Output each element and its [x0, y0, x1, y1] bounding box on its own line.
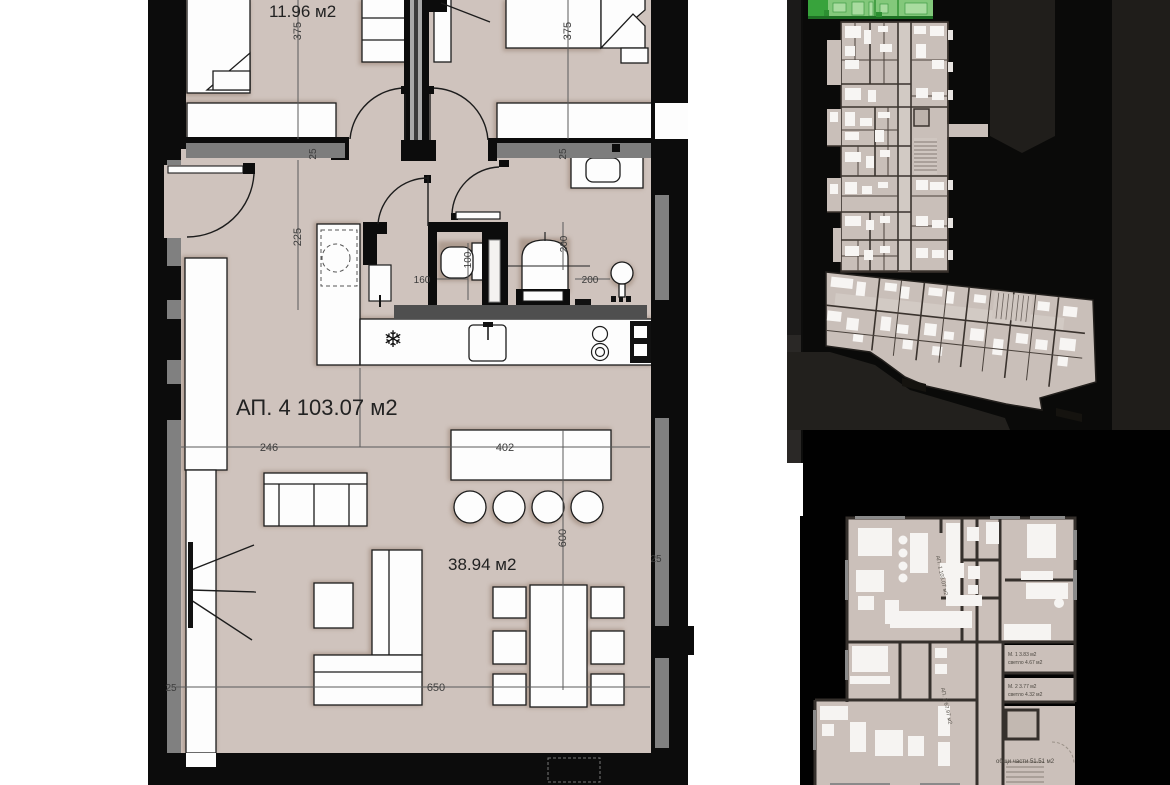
svg-text:38.94 м2: 38.94 м2	[448, 555, 516, 574]
svg-text:11.96 м2: 11.96 м2	[269, 2, 336, 21]
svg-text:общи части 51.51 м2: общи части 51.51 м2	[996, 759, 1055, 765]
svg-text:АП. 4 103.07 м2: АП. 4 103.07 м2	[236, 395, 398, 420]
svg-text:375: 375	[562, 22, 574, 40]
svg-text:200: 200	[582, 275, 599, 286]
svg-text:25: 25	[165, 683, 177, 694]
svg-text:246: 246	[260, 442, 278, 454]
svg-text:25: 25	[558, 148, 569, 160]
svg-text:200: 200	[559, 235, 570, 252]
svg-text:светло 4.32 м2: светло 4.32 м2	[1008, 692, 1043, 698]
svg-text:25: 25	[308, 148, 319, 160]
svg-text:100: 100	[463, 251, 474, 268]
svg-text:375: 375	[292, 22, 304, 40]
svg-text:25: 25	[650, 554, 662, 565]
svg-text:М. 2 3.77 м2: М. 2 3.77 м2	[1008, 684, 1037, 690]
svg-text:402: 402	[496, 442, 514, 454]
svg-text:160: 160	[414, 275, 431, 286]
svg-text:светло 4.67 м2: светло 4.67 м2	[1008, 660, 1043, 666]
svg-text:М. 1 3.83 м2: М. 1 3.83 м2	[1008, 652, 1037, 658]
svg-text:650: 650	[427, 682, 445, 694]
svg-text:❄: ❄	[383, 326, 402, 352]
svg-text:600: 600	[557, 529, 569, 547]
svg-text:225: 225	[292, 228, 304, 246]
